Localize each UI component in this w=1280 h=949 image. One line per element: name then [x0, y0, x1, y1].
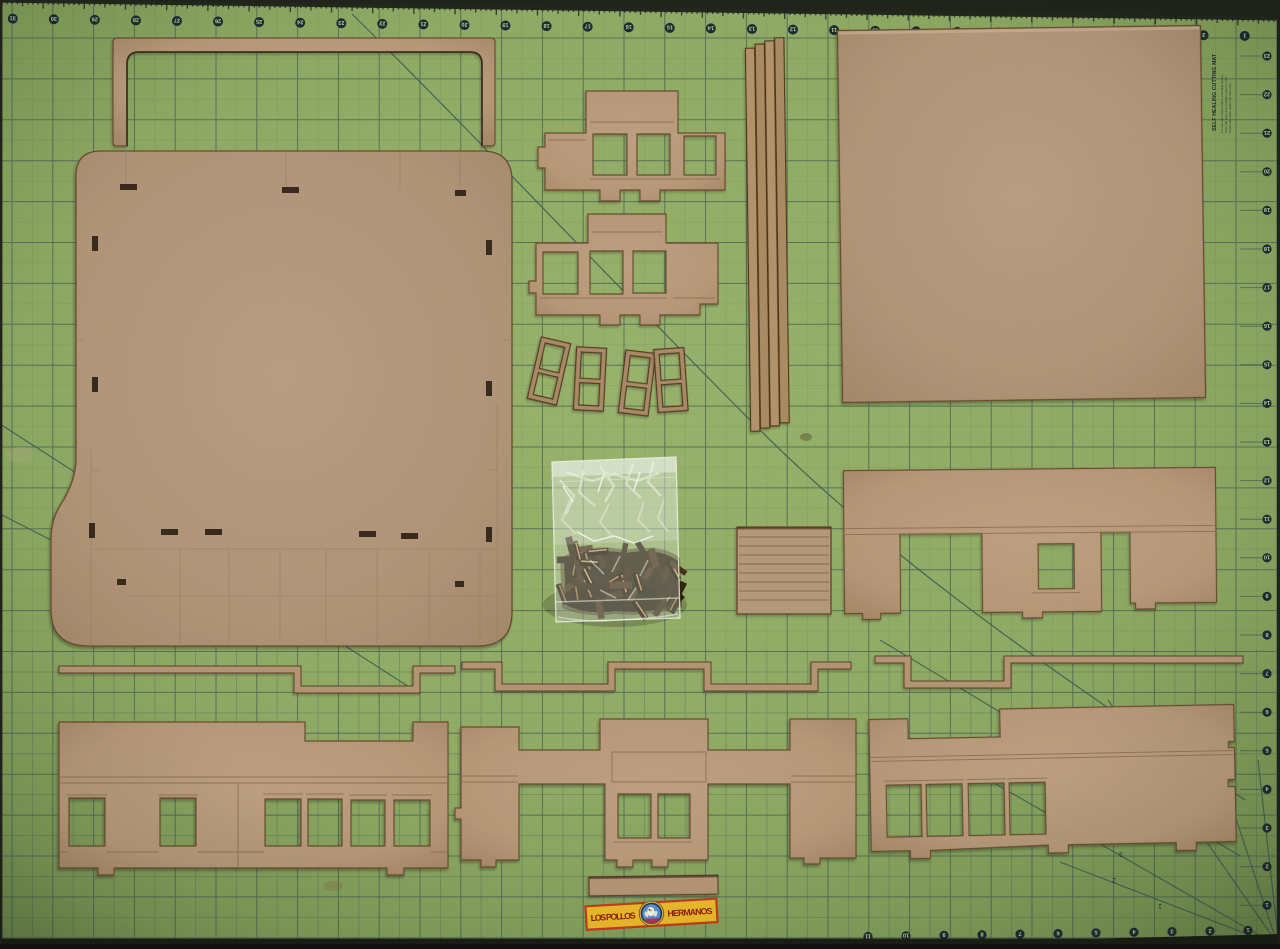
svg-text:11: 11 [831, 26, 837, 32]
svg-text:21: 21 [420, 20, 426, 26]
svg-text:6: 6 [1056, 929, 1059, 935]
svg-text:10: 10 [903, 932, 909, 938]
svg-text:23: 23 [338, 19, 344, 25]
svg-text:15: 15 [1264, 361, 1270, 367]
svg-text:27: 27 [174, 17, 180, 23]
svg-text:13: 13 [749, 25, 755, 31]
svg-text:17: 17 [585, 22, 591, 28]
svg-text:22: 22 [379, 20, 385, 26]
svg-text:1: 1 [1246, 926, 1249, 932]
svg-text:13: 13 [1264, 438, 1270, 444]
svg-text:12: 12 [1264, 476, 1270, 482]
svg-text:22: 22 [1264, 90, 1270, 96]
svg-text:2: 2 [1208, 927, 1211, 933]
svg-text:1: 1 [1158, 902, 1162, 909]
svg-text:28: 28 [133, 16, 139, 22]
svg-text:19: 19 [502, 21, 508, 27]
svg-text:8: 8 [980, 931, 983, 937]
svg-text:23: 23 [1264, 52, 1270, 58]
svg-text:5: 5 [1094, 929, 1097, 935]
svg-text:15: 15 [667, 24, 673, 30]
svg-text:2: 2 [1202, 31, 1205, 37]
svg-text:14: 14 [707, 24, 714, 30]
svg-text:5: 5 [1265, 747, 1268, 753]
svg-text:9: 9 [1265, 592, 1268, 598]
svg-text:17: 17 [1264, 283, 1270, 289]
svg-text:19: 19 [1264, 206, 1270, 212]
svg-text:16: 16 [1264, 322, 1270, 328]
svg-text:3: 3 [1119, 850, 1123, 857]
svg-text:18: 18 [543, 22, 549, 28]
svg-text:7: 7 [1265, 669, 1268, 675]
svg-text:2: 2 [1265, 862, 1268, 868]
svg-text:3: 3 [1265, 824, 1268, 830]
svg-text:Clean with warm water and mild: Clean with warm water and mild soap. [1228, 82, 1232, 133]
svg-text:26: 26 [215, 17, 221, 23]
svg-text:1: 1 [1243, 32, 1246, 38]
svg-text:1: 1 [1265, 901, 1268, 907]
svg-text:21: 21 [1264, 129, 1270, 135]
svg-text:30: 30 [51, 15, 57, 21]
svg-text:7: 7 [1018, 930, 1021, 936]
svg-text:20: 20 [1264, 168, 1270, 174]
svg-text:9: 9 [942, 931, 945, 937]
svg-text:11: 11 [1264, 515, 1270, 521]
svg-text:29: 29 [92, 16, 98, 22]
svg-text:6: 6 [1265, 708, 1268, 714]
svg-text:10: 10 [1264, 554, 1270, 560]
svg-text:20: 20 [461, 21, 467, 27]
svg-text:25: 25 [256, 18, 262, 24]
svg-text:16: 16 [626, 23, 632, 29]
svg-text:2: 2 [1112, 876, 1116, 883]
svg-text:24: 24 [296, 18, 303, 24]
svg-text:12: 12 [790, 25, 796, 31]
svg-text:11: 11 [865, 932, 871, 938]
svg-text:8: 8 [1265, 631, 1268, 637]
svg-text:3: 3 [1170, 927, 1173, 933]
svg-text:31: 31 [10, 14, 16, 20]
svg-text:14: 14 [1263, 399, 1270, 405]
svg-text:18: 18 [1264, 245, 1270, 251]
svg-text:SELF HEALING CUTTING MAT: SELF HEALING CUTTING MAT [1212, 53, 1218, 131]
